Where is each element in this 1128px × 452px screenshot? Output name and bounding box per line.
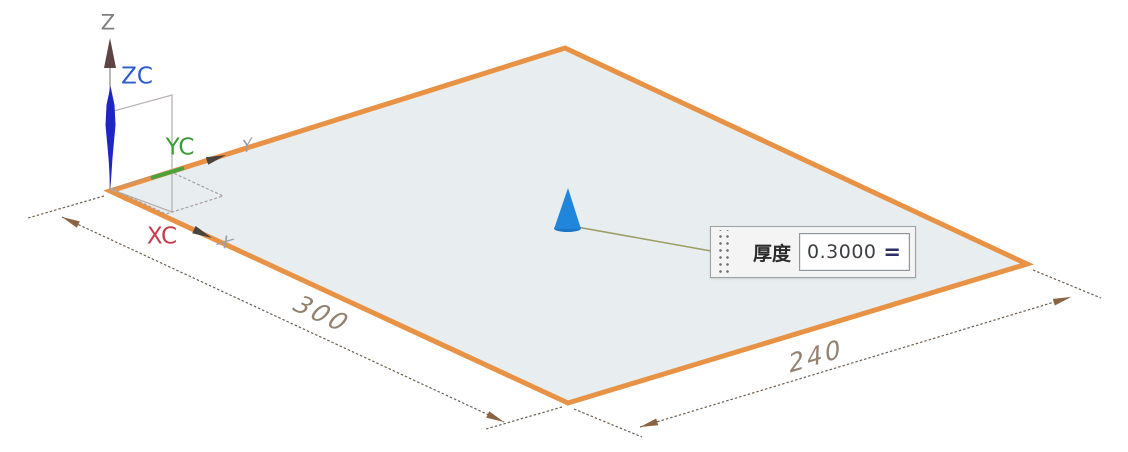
dim-300-arrow-left-icon [62, 217, 80, 228]
thickness-value[interactable]: 0.3000 [807, 241, 876, 263]
y-axis-glyph: Y [241, 136, 253, 157]
thickness-input-box: 厚度 0.3000 = [710, 226, 916, 278]
thickness-label: 厚度 [753, 239, 791, 266]
formula-equals-button[interactable]: = [882, 242, 902, 263]
thickness-input[interactable]: 0.3000 = [799, 233, 910, 271]
z-axis-handle-icon[interactable] [106, 86, 116, 188]
drag-grip-icon[interactable] [715, 230, 731, 274]
yc-axis-label: YC [166, 137, 195, 160]
dim-240-arrow-right-icon [1053, 297, 1071, 306]
cad-viewport: Z ZC YC XC Y X 300 240 厚度 0.3000 = [0, 0, 1128, 452]
dim-240-arrow-left-icon [640, 419, 658, 428]
z-axis-label: Z [101, 13, 115, 34]
xc-axis-label: XC [147, 226, 177, 249]
z-axis-arrow-icon[interactable] [104, 38, 116, 68]
zc-axis-label: ZC [121, 66, 153, 89]
dim-300-arrow-right-icon [486, 411, 504, 422]
